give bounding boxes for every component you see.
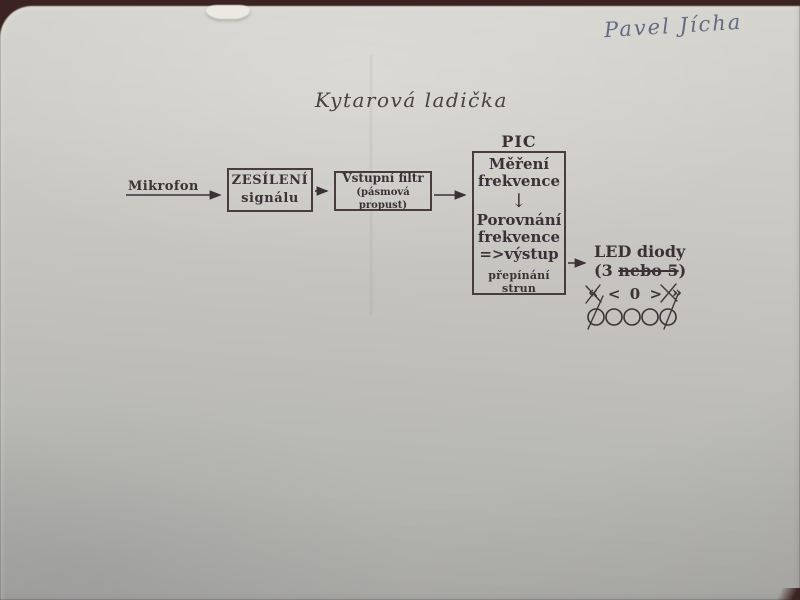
led-circle-3 (624, 309, 640, 325)
led-circle-2 (606, 309, 622, 325)
led-circle-5 (660, 309, 676, 325)
diagram-lines-overlay (0, 0, 800, 600)
led-circles (588, 309, 676, 325)
table-corner (766, 588, 800, 600)
photo-of-paper: Pavel Jícha Kytarová ladička Mikrofon ZE… (0, 0, 800, 600)
diagram-layer: Pavel Jícha Kytarová ladička Mikrofon ZE… (0, 0, 800, 600)
led-circle-4 (642, 309, 658, 325)
